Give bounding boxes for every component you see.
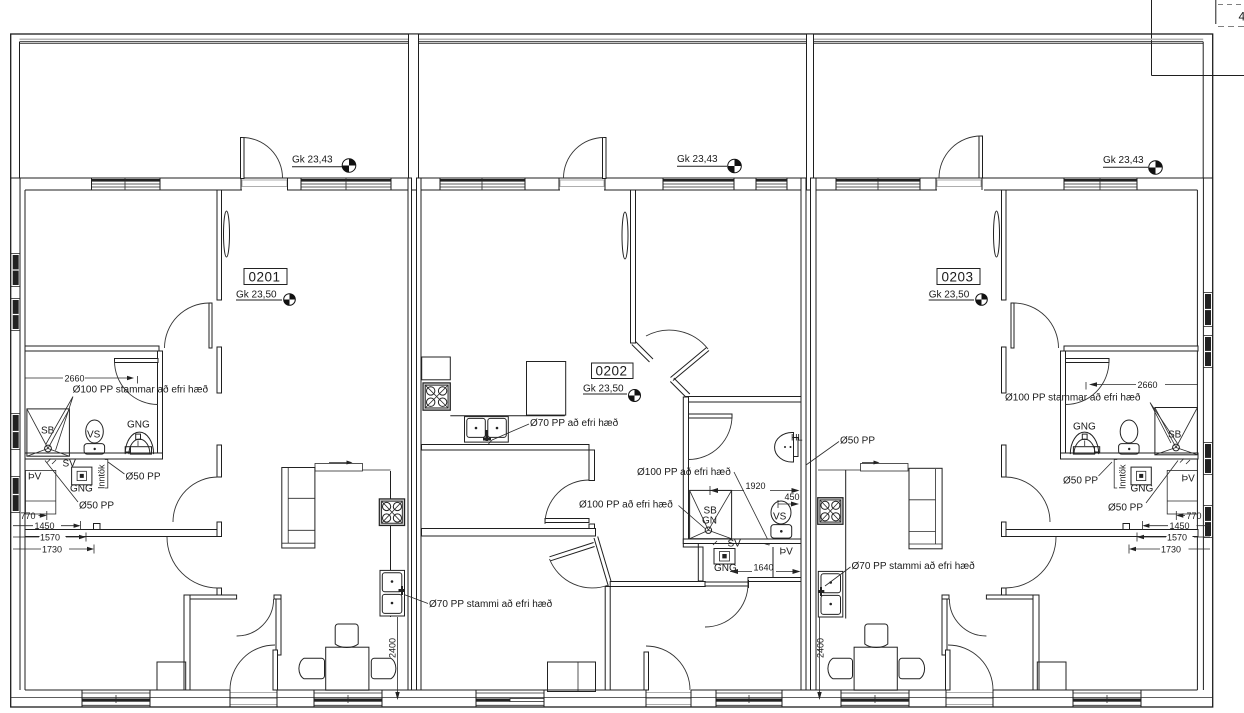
svg-text:GNG: GNG — [1073, 422, 1096, 433]
svg-text:2400: 2400 — [388, 638, 398, 658]
svg-text:SB: SB — [41, 426, 55, 437]
svg-text:Gk 23,43: Gk 23,43 — [1103, 155, 1144, 166]
svg-text:Ø100 PP stammar að efri hæð: Ø100 PP stammar að efri hæð — [73, 384, 209, 396]
svg-text:770: 770 — [21, 511, 36, 521]
svg-text:SV: SV — [728, 539, 742, 550]
svg-text:Ø70 PP stammi að efri hæð: Ø70 PP stammi að efri hæð — [429, 598, 553, 610]
svg-text:GN: GN — [702, 516, 717, 527]
svg-text:1640: 1640 — [754, 563, 774, 573]
svg-text:VS: VS — [87, 430, 101, 441]
svg-text:Ø50 PP: Ø50 PP — [840, 436, 875, 447]
svg-text:0203: 0203 — [942, 270, 974, 285]
svg-text:Ø70 PP stammi að efri hæð: Ø70 PP stammi að efri hæð — [852, 560, 976, 572]
svg-text:0201: 0201 — [249, 270, 281, 285]
svg-text:HL: HL — [791, 433, 803, 443]
svg-text:Ø50 PP: Ø50 PP — [126, 472, 161, 483]
svg-text:ÞV: ÞV — [1182, 474, 1196, 485]
svg-text:GNG: GNG — [1131, 484, 1154, 495]
svg-text:4: 4 — [1239, 10, 1244, 24]
svg-text:Ø50 PP: Ø50 PP — [1063, 476, 1098, 487]
svg-text:GNG: GNG — [127, 420, 150, 431]
svg-text:0202: 0202 — [596, 364, 628, 379]
svg-text:1730: 1730 — [1161, 545, 1181, 555]
svg-text:Gk 23,43: Gk 23,43 — [292, 155, 333, 166]
svg-text:770: 770 — [1187, 511, 1202, 521]
svg-text:Ø50 PP: Ø50 PP — [79, 501, 114, 512]
svg-text:ÞV: ÞV — [780, 547, 794, 558]
svg-text:2660: 2660 — [65, 374, 85, 384]
svg-text:1570: 1570 — [40, 533, 60, 543]
svg-text:Gk 23,50: Gk 23,50 — [929, 290, 970, 301]
svg-text:Ø100 PP stammar að efri hæð: Ø100 PP stammar að efri hæð — [1005, 392, 1141, 404]
svg-text:1730: 1730 — [42, 545, 62, 555]
svg-text:VS: VS — [773, 512, 787, 523]
svg-text:Ø100 PP að efri hæð: Ø100 PP að efri hæð — [637, 466, 731, 478]
svg-text:1450: 1450 — [1170, 521, 1190, 531]
svg-text:GNG: GNG — [70, 484, 93, 495]
svg-text:2400: 2400 — [816, 638, 826, 658]
svg-text:1450: 1450 — [35, 521, 55, 531]
svg-text:Ø70 PP að efri hæð: Ø70 PP að efri hæð — [530, 417, 619, 429]
svg-text:Gk 23,43: Gk 23,43 — [677, 154, 718, 165]
svg-text:1920: 1920 — [746, 481, 766, 491]
svg-text:Ø50 PP: Ø50 PP — [1108, 503, 1143, 514]
svg-text:Inntök: Inntök — [1118, 464, 1128, 489]
svg-text:Gk 23,50: Gk 23,50 — [583, 384, 624, 395]
svg-text:Ø100 PP að efri hæð: Ø100 PP að efri hæð — [579, 499, 673, 511]
svg-text:SV: SV — [63, 459, 77, 470]
svg-text:1570: 1570 — [1167, 533, 1187, 543]
svg-text:Inntök: Inntök — [97, 464, 107, 489]
svg-text:450: 450 — [785, 492, 800, 502]
svg-text:2660: 2660 — [1138, 380, 1158, 390]
svg-text:Gk 23,50: Gk 23,50 — [236, 290, 277, 301]
svg-text:ÞV: ÞV — [28, 472, 42, 483]
